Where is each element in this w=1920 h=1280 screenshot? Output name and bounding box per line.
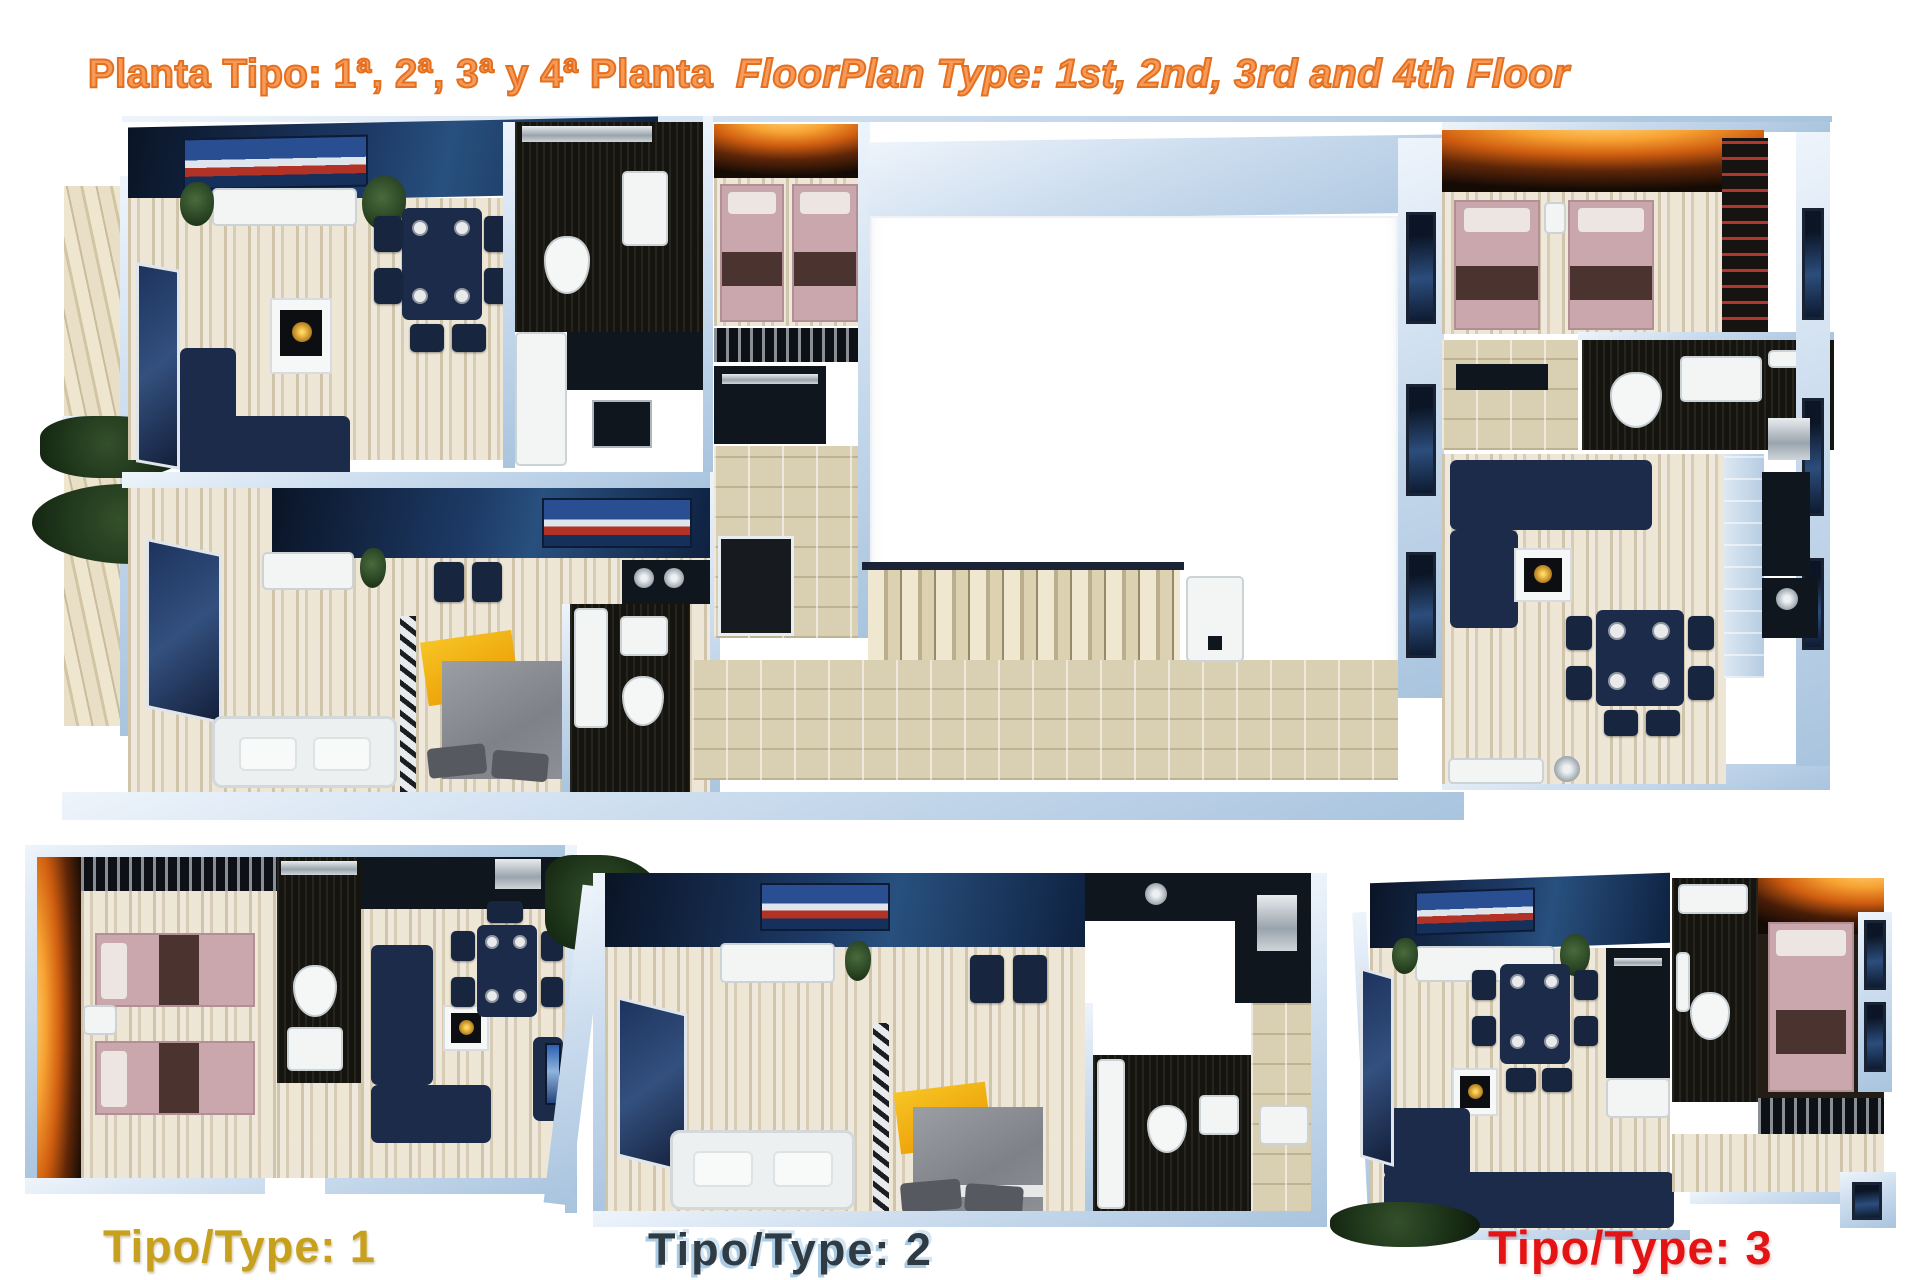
towel-rail	[1676, 952, 1690, 1012]
plate	[412, 288, 428, 304]
fireplace-flame	[1468, 1084, 1483, 1099]
brand-screen	[183, 135, 368, 191]
window	[1406, 212, 1436, 324]
plate	[454, 220, 470, 236]
plate	[1544, 1034, 1559, 1049]
chair	[1566, 666, 1592, 700]
kitchen-cabinets	[1724, 454, 1764, 678]
dining-table	[477, 925, 537, 1017]
stair-handrail	[862, 562, 1184, 570]
counter-edge	[1614, 958, 1662, 966]
chair	[487, 901, 523, 923]
title-spanish: Planta Tipo: 1ª, 2ª, 3ª y 4ª Planta	[88, 52, 713, 97]
bed-blanket	[159, 1043, 199, 1113]
chair	[374, 268, 402, 304]
type3-floor-plan	[1360, 872, 1905, 1240]
fireplace-flame	[1534, 565, 1552, 583]
hall-floor	[277, 1083, 361, 1178]
sideboard	[212, 188, 357, 226]
console-table	[1456, 364, 1548, 390]
outer-wall-bottom	[62, 792, 1464, 820]
cushion	[773, 1151, 833, 1187]
chair	[452, 324, 486, 352]
kitchen-sink	[664, 568, 684, 588]
bedroom-accent-glow	[714, 124, 862, 178]
hall-floor	[1442, 340, 1578, 450]
bedroom-accent-glow	[1442, 130, 1764, 192]
hedge	[1330, 1202, 1480, 1247]
plate	[1510, 1034, 1525, 1049]
sink-vanity	[1680, 356, 1762, 402]
dining-table	[402, 208, 482, 320]
sofa	[1450, 460, 1652, 530]
type1-floor-plan	[25, 845, 577, 1213]
type2-floor-plan	[545, 855, 1335, 1235]
closet	[81, 857, 277, 891]
bed-pillow	[1464, 208, 1530, 232]
plate	[513, 989, 527, 1003]
leaning-mirror	[1360, 967, 1394, 1167]
white-sofa	[670, 1130, 855, 1210]
plate	[454, 288, 470, 304]
partition-wall	[122, 472, 712, 488]
plate	[485, 989, 499, 1003]
bed-pillow	[1578, 208, 1644, 232]
chair	[1542, 1068, 1572, 1092]
bed-blanket	[1570, 266, 1652, 300]
pink-bed	[720, 184, 784, 322]
kitchenette	[714, 366, 826, 444]
pink-bed	[1768, 922, 1854, 1092]
white-sofa	[212, 716, 397, 788]
chair	[434, 562, 464, 602]
floor-lamp	[1554, 756, 1580, 782]
fireplace-flame	[459, 1020, 474, 1035]
pink-bed	[1568, 200, 1654, 330]
sink	[1199, 1095, 1239, 1135]
side-table	[1259, 1105, 1309, 1145]
pink-bed	[95, 933, 255, 1007]
sink	[622, 171, 668, 246]
bed-blanket	[1456, 266, 1538, 300]
wardrobe-mirror	[136, 262, 180, 470]
elevator	[1186, 576, 1244, 662]
cushion	[239, 737, 297, 771]
nightstand	[1544, 202, 1566, 234]
partition-wall	[562, 604, 570, 794]
window	[1864, 920, 1886, 990]
plate	[1608, 672, 1626, 690]
window	[1852, 1182, 1882, 1220]
main-floor-plan	[62, 116, 1830, 838]
bathroom-mirror	[522, 126, 652, 142]
bar-stool	[970, 955, 1004, 1003]
tall-oven-unit	[1762, 472, 1810, 576]
chair	[1472, 970, 1496, 1000]
chair	[410, 324, 444, 352]
dining-table	[1596, 610, 1684, 706]
plate	[1652, 672, 1670, 690]
bed-pillow	[728, 192, 776, 214]
fireplace	[1514, 548, 1572, 602]
bed-pillow	[427, 743, 488, 779]
bed-pillow	[800, 192, 850, 214]
plate	[1608, 622, 1626, 640]
kitchen-unit	[1606, 948, 1670, 1078]
bar-stool	[1013, 955, 1047, 1003]
plate	[412, 220, 428, 236]
stairs	[868, 570, 1180, 660]
bedroom-accent-glow	[37, 857, 81, 1178]
chair	[1688, 666, 1714, 700]
chair	[472, 562, 502, 602]
kitchen-sink	[634, 568, 654, 588]
brand-screen	[542, 498, 692, 548]
kitchen-sink	[1145, 883, 1167, 905]
bed-pillow	[101, 943, 127, 999]
brand-screen	[1415, 887, 1535, 935]
type3-label: Tipo/Type: 3	[1488, 1220, 1772, 1275]
bed-blanket	[159, 935, 199, 1005]
bathtub	[1097, 1059, 1125, 1209]
bed-pillow	[491, 750, 549, 783]
type2-label: Tipo/Type: 2	[648, 1224, 933, 1276]
bed-pillow	[1776, 930, 1846, 956]
bed-blanket	[722, 252, 782, 286]
room-divider	[873, 1023, 889, 1217]
chair	[1688, 616, 1714, 650]
cushion	[313, 737, 371, 771]
window	[1406, 384, 1436, 496]
kitchen-counter	[1606, 1078, 1670, 1118]
sofa	[371, 1085, 491, 1143]
range-hood	[495, 859, 541, 889]
oven	[592, 400, 652, 448]
dining-table	[1500, 964, 1570, 1064]
shower-tray	[574, 608, 608, 728]
chair	[1506, 1068, 1536, 1092]
sideboard	[262, 552, 354, 590]
sink	[620, 616, 668, 656]
window	[1802, 208, 1824, 320]
window	[1406, 552, 1436, 658]
sofa-arm	[180, 348, 236, 438]
chair	[1604, 710, 1638, 736]
chair	[1472, 1016, 1496, 1046]
chair	[1574, 1016, 1598, 1046]
type1-label: Tipo/Type: 1	[103, 1221, 376, 1273]
range-hood	[1768, 418, 1810, 460]
chair	[451, 977, 475, 1007]
window	[1864, 1002, 1886, 1072]
plate	[513, 935, 527, 949]
kitchen-sink	[1776, 588, 1798, 610]
plate	[485, 935, 499, 949]
chair	[1646, 710, 1680, 736]
bed-blanket	[1776, 1010, 1846, 1054]
cushion	[693, 1151, 753, 1187]
shower-tray	[1678, 884, 1748, 914]
chair	[451, 931, 475, 961]
sideboard	[720, 943, 835, 983]
chair	[374, 216, 402, 252]
wardrobe	[1722, 138, 1768, 336]
storage-room	[718, 536, 794, 636]
partition-wall	[503, 122, 515, 468]
wall	[25, 845, 37, 1190]
chair	[1566, 616, 1592, 650]
nightstand	[83, 1005, 117, 1035]
fireplace-flame	[292, 322, 312, 342]
leaning-mirror	[146, 538, 222, 724]
counter-edge	[722, 374, 818, 384]
kitchen-counter	[567, 332, 705, 390]
door-opening	[265, 1178, 325, 1194]
brand-screen	[760, 883, 890, 931]
tv-wall	[1370, 873, 1670, 953]
wall	[1311, 873, 1327, 1227]
room-divider	[400, 616, 416, 792]
wall	[1085, 1003, 1093, 1225]
sink	[287, 1027, 343, 1071]
closet	[1758, 1098, 1884, 1134]
pink-bed	[95, 1041, 255, 1115]
range-hood	[1257, 895, 1297, 951]
apartment-b-tv-wall	[272, 488, 712, 558]
bathroom	[515, 122, 705, 332]
title-english: FloorPlan Type: 1st, 2nd, 3rd and 4th Fl…	[736, 52, 1569, 97]
pink-bed	[1454, 200, 1540, 330]
elevator-panel	[1208, 636, 1222, 650]
fridge	[515, 332, 567, 466]
plate	[1652, 622, 1670, 640]
fireplace	[270, 298, 332, 374]
plate	[1510, 974, 1525, 989]
landing-floor	[692, 660, 1398, 780]
closet	[714, 328, 862, 362]
bed-blanket	[794, 252, 856, 286]
bathroom-mirror	[281, 861, 357, 875]
bed-pillow	[101, 1051, 127, 1107]
sideboard	[1448, 758, 1544, 784]
plate	[1544, 974, 1559, 989]
chair	[1574, 970, 1598, 1000]
partition-wall	[703, 116, 713, 472]
pink-bed	[792, 184, 858, 322]
wall	[25, 845, 577, 857]
sofa-arm	[1450, 530, 1518, 628]
tv-wall	[605, 873, 1085, 947]
sofa-arm	[1384, 1108, 1470, 1178]
sofa-arm	[371, 945, 433, 1085]
bed-pillow	[900, 1178, 962, 1213]
